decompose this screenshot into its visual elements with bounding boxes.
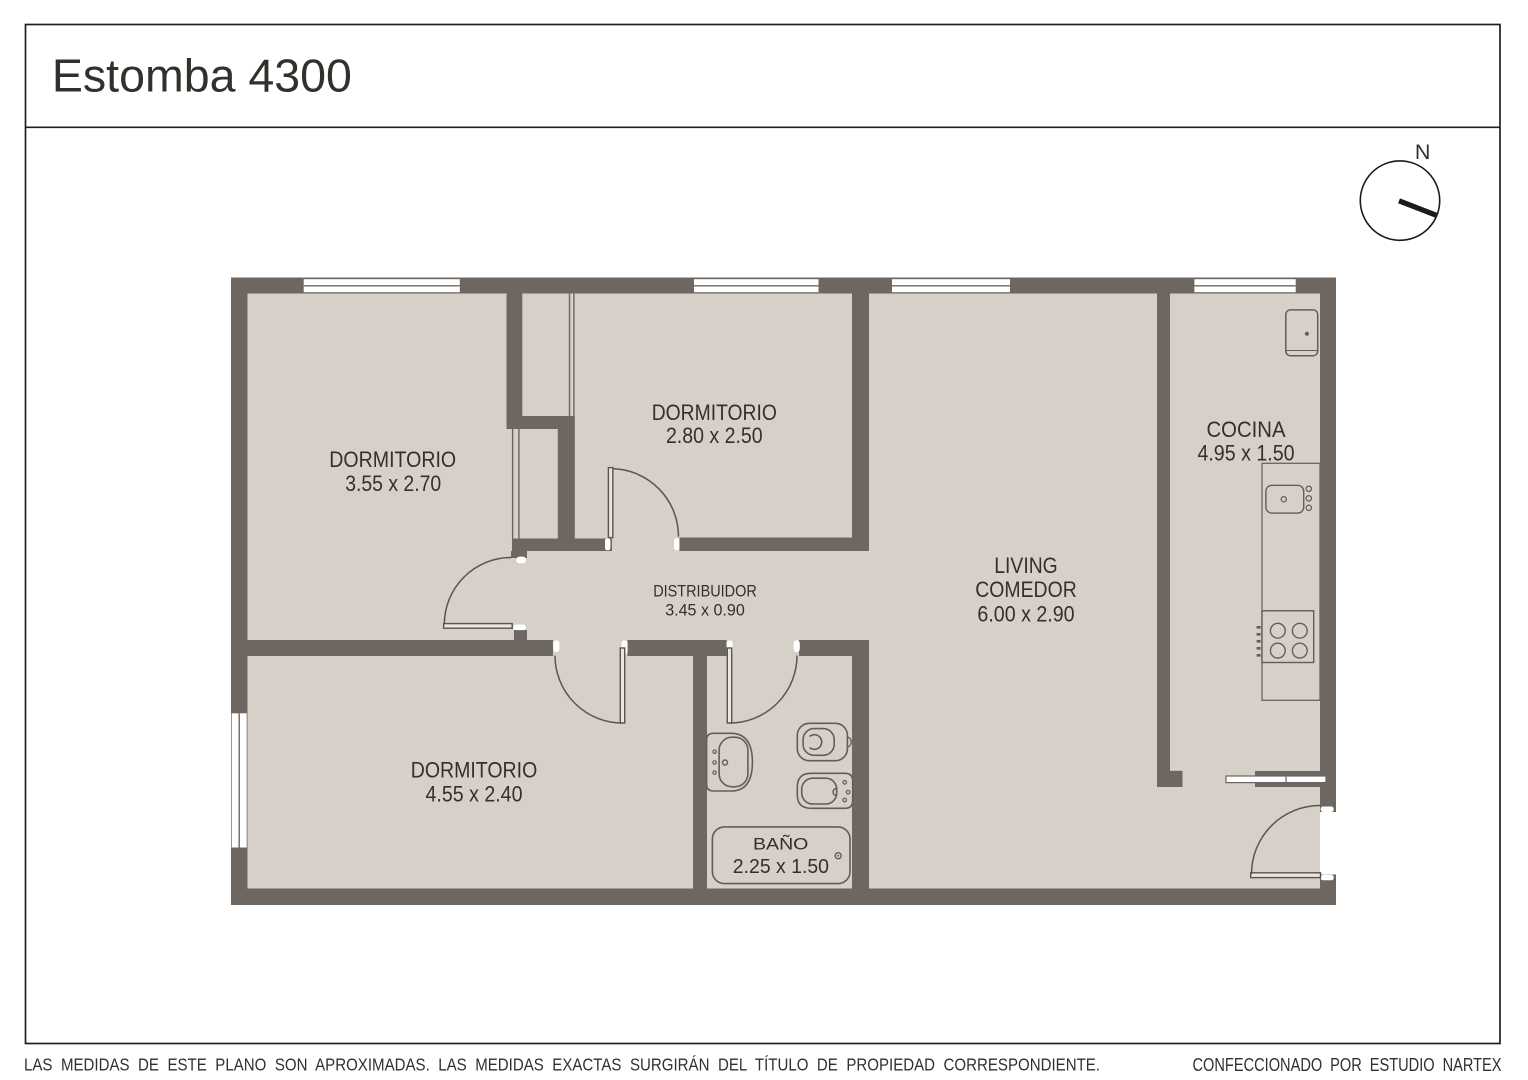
svg-text:2.80 x 2.50: 2.80 x 2.50 [666, 423, 763, 448]
svg-text:LAS MEDIDAS DE ESTE PLANO SON: LAS MEDIDAS DE ESTE PLANO SON APROXIMADA… [24, 1055, 1100, 1075]
svg-text:COMEDOR: COMEDOR [975, 577, 1077, 602]
svg-text:Estomba 4300: Estomba 4300 [52, 50, 352, 102]
svg-text:DORMITORIO: DORMITORIO [329, 447, 456, 472]
svg-text:3.55 x 2.70: 3.55 x 2.70 [345, 471, 441, 496]
svg-text:BAÑO: BAÑO [753, 834, 808, 853]
svg-text:DORMITORIO: DORMITORIO [411, 758, 538, 783]
svg-text:LIVING: LIVING [994, 553, 1057, 578]
svg-text:COCINA: COCINA [1206, 417, 1285, 442]
svg-text:N: N [1415, 140, 1431, 164]
svg-text:DORMITORIO: DORMITORIO [652, 400, 777, 425]
svg-text:4.95 x 1.50: 4.95 x 1.50 [1197, 441, 1294, 466]
svg-text:3.45 x 0.90: 3.45 x 0.90 [665, 601, 745, 619]
svg-text:2.25 x 1.50: 2.25 x 1.50 [733, 856, 829, 878]
svg-text:DISTRIBUIDOR: DISTRIBUIDOR [653, 583, 757, 601]
svg-text:CONFECCIONADO POR ESTUDIO NART: CONFECCIONADO POR ESTUDIO NARTEX [1193, 1054, 1502, 1075]
svg-text:6.00 x 2.90: 6.00 x 2.90 [977, 601, 1074, 626]
svg-text:4.55 x 2.40: 4.55 x 2.40 [426, 782, 523, 807]
